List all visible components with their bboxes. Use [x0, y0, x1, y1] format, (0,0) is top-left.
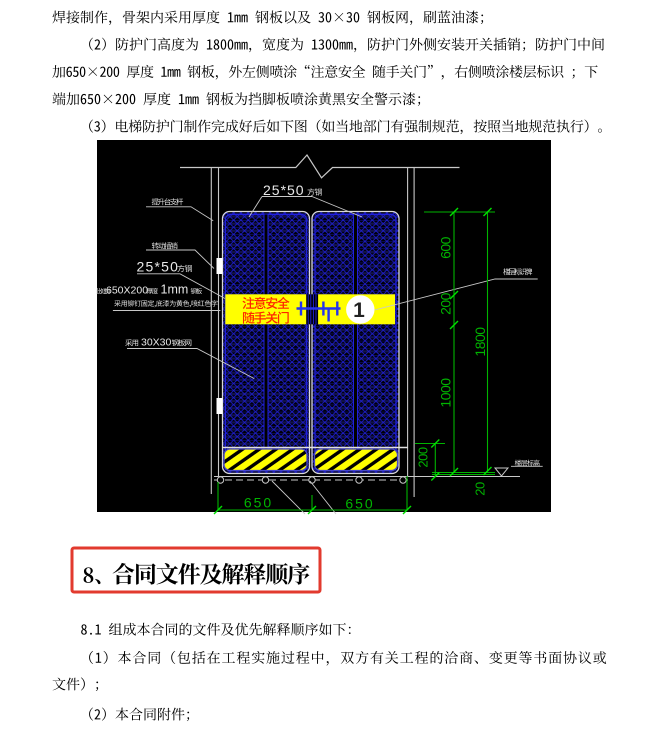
svg-text:1mm: 1mm: [161, 283, 189, 297]
svg-text:600: 600: [438, 236, 454, 259]
svg-text:1: 1: [353, 299, 365, 322]
svg-text:30X30: 30X30: [141, 337, 172, 349]
svg-text:650X200: 650X200: [106, 285, 148, 297]
svg-text:200: 200: [438, 292, 454, 315]
svg-text:25*50: 25*50: [137, 259, 180, 275]
svg-text:20: 20: [473, 482, 488, 496]
svg-text:25*50: 25*50: [263, 182, 305, 198]
svg-text:200: 200: [416, 447, 431, 467]
svg-text:650: 650: [244, 495, 273, 511]
svg-text:650: 650: [345, 496, 374, 512]
svg-text:1000: 1000: [438, 378, 454, 408]
svg-text:1800: 1800: [472, 327, 488, 357]
